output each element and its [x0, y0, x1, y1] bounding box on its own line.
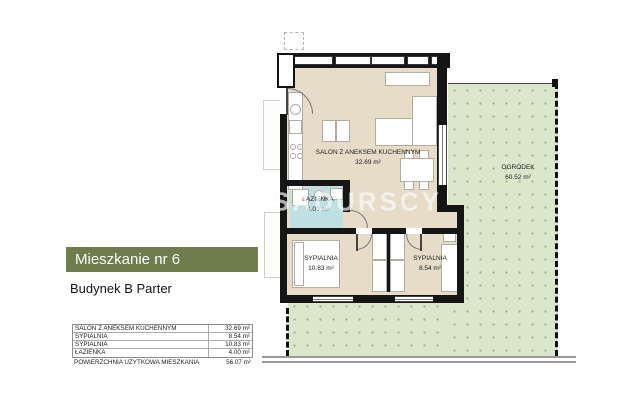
window-bottom	[313, 296, 353, 302]
stove-burner	[297, 144, 303, 150]
wall-right-bedroom	[457, 205, 464, 303]
window-top	[335, 56, 371, 65]
room-area: 8.54 m²	[413, 264, 447, 274]
table-row: SALON Z ANEKSEM KUCHENNYM 32.69 m²	[73, 325, 252, 333]
stove-burner	[297, 153, 303, 159]
room-name: SYPIALNIA	[304, 254, 338, 264]
row-label: SALON Z ANEKSEM KUCHENNYM	[73, 325, 208, 332]
floor-plan-page: SALON Z ANEKSEM KUCHENNYM 32.69 m² ŁAZIE…	[0, 0, 620, 400]
room-label-garden: OGRÓDEK 60.52 m²	[501, 163, 534, 183]
sideboard	[385, 72, 430, 86]
wall-middle	[280, 228, 464, 234]
room-area: 10.83 m²	[304, 264, 338, 274]
table-row: SYPIALNIA 10.83 m²	[73, 341, 252, 349]
wall-bottom	[280, 295, 464, 303]
stove-burner	[290, 144, 296, 150]
row-value: 32.69 m²	[208, 325, 252, 332]
fence-line	[262, 356, 576, 363]
garden-area-right	[448, 83, 558, 356]
wall-bathroom-top	[284, 180, 350, 186]
window-top	[294, 56, 333, 65]
stove-burner	[290, 153, 296, 159]
garden-area-bottom	[288, 300, 448, 356]
kitchen-cabinet	[289, 120, 302, 134]
window-top	[371, 56, 405, 65]
door-leaf	[286, 88, 288, 115]
row-value: 4.00 m²	[208, 349, 252, 357]
room-name: OGRÓDEK	[501, 163, 534, 173]
row-value: 8.54 m²	[208, 333, 252, 340]
apartment-title: Mieszkanie nr 6	[75, 251, 180, 268]
room-area: 60.52 m²	[501, 173, 534, 183]
vent-duct	[284, 32, 304, 50]
wardrobe	[372, 260, 387, 292]
row-value: 10.83 m²	[208, 341, 252, 348]
watermark: SADURSCY	[272, 187, 442, 218]
row-label: SYPIALNIA	[73, 341, 208, 348]
bed-pillow	[294, 242, 304, 286]
door-leaf	[420, 234, 422, 251]
apartment-title-bar: Mieszkanie nr 6	[66, 247, 258, 272]
room-label-bedroom2: SYPIALNIA 8.54 m²	[413, 254, 447, 274]
total-label: POWIERZCHNIA UŻYTKOWA MIESZKANIA	[72, 359, 209, 367]
sofa-chaise	[412, 96, 437, 146]
table-row: ŁAZIENKA 4.00 m²	[73, 349, 252, 357]
building-subtitle: Budynek B Parter	[70, 281, 172, 296]
room-name: SYPIALNIA	[413, 254, 447, 264]
room-label-bedroom1: SYPIALNIA 10.83 m²	[304, 254, 338, 274]
total-value: 56.07 m²	[209, 359, 253, 367]
window-top	[407, 56, 429, 65]
garden-border-left	[286, 308, 290, 356]
garden-corner-mark	[552, 79, 558, 87]
shaft	[277, 53, 295, 88]
room-name: SALON Z ANEKSEM KUCHENNYM	[316, 148, 421, 158]
row-label: ŁAZIENKA	[73, 349, 208, 357]
room-area: 32.69 m²	[316, 158, 421, 168]
area-table: SALON Z ANEKSEM KUCHENNYM 32.69 m² SYPIA…	[72, 324, 253, 358]
garden-door	[438, 125, 447, 185]
window-bottom	[395, 296, 433, 302]
kitchen-island	[336, 120, 350, 142]
wardrobe	[390, 260, 405, 292]
door-leaf	[356, 234, 358, 251]
wall-bedroom-divider	[387, 234, 390, 292]
table-total-row: POWIERZCHNIA UŻYTKOWA MIESZKANIA 56.07 m…	[72, 359, 253, 367]
kitchen-island	[322, 120, 336, 142]
row-label: SYPIALNIA	[73, 333, 208, 340]
table-row: SYPIALNIA 8.54 m²	[73, 333, 252, 341]
room-label-salon: SALON Z ANEKSEM KUCHENNYM 32.69 m²	[316, 148, 421, 168]
